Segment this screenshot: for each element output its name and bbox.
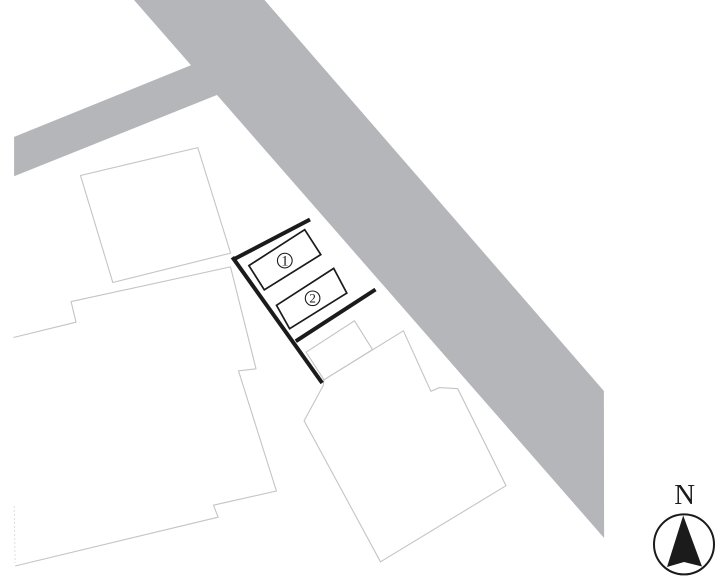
svg-text:N: N — [674, 479, 695, 511]
svg-text:2: 2 — [309, 291, 316, 306]
svg-text:1: 1 — [281, 253, 288, 269]
